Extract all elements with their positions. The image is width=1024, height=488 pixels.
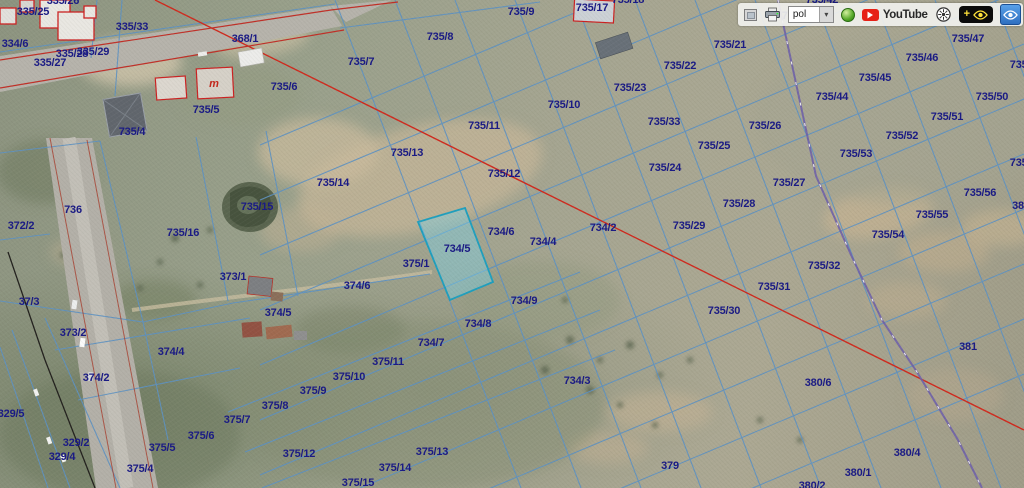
- parcel-label: 735/10: [548, 99, 580, 111]
- parcel-label: 735/56: [964, 187, 996, 199]
- parcel-label: 735/47: [952, 33, 984, 45]
- parcel-label: 375/10: [333, 371, 365, 383]
- parcel-label: 735/23: [614, 82, 646, 94]
- parcel-label: 734/2: [590, 222, 617, 234]
- visibility-button[interactable]: [1000, 4, 1021, 25]
- settings-icon: [935, 6, 952, 23]
- parcel-label: 735/24: [649, 162, 681, 174]
- image-icon: [744, 9, 757, 21]
- parcel-label: 735/32: [808, 260, 840, 272]
- parcel-label: 736: [64, 204, 82, 216]
- parcel-label: 380/1: [845, 467, 872, 479]
- parcel-label: 375/6: [188, 430, 215, 442]
- parcel-label: 375/14: [379, 462, 411, 474]
- language-select-value: pol: [793, 9, 806, 20]
- parcel-label: 735/27: [773, 177, 805, 189]
- parcel-label: 374/6: [344, 280, 371, 292]
- parcel-label: 374/2: [83, 372, 110, 384]
- parcel-label: 735/45: [859, 72, 891, 84]
- status-button[interactable]: [841, 8, 855, 22]
- parcel-label: 375/11: [372, 356, 404, 368]
- parcel-label: 380/6: [805, 377, 832, 389]
- parcel-label: 735/30: [708, 305, 740, 317]
- parcel-label: 735/12: [488, 168, 520, 180]
- parcel-label: 375/12: [283, 448, 315, 460]
- parcel-label: 735/54: [872, 229, 904, 241]
- green-circle-icon: [841, 8, 855, 22]
- print-button[interactable]: [764, 7, 781, 22]
- parcel-label: 374/5: [265, 307, 292, 319]
- parcel-label: 735/7: [348, 56, 375, 68]
- parcel-label: 735/53: [840, 148, 872, 160]
- parcel-label: 735/21: [714, 39, 746, 51]
- parcel-labels-layer: 335/26335/25335/33334/6335/29335/28335/2…: [0, 0, 1024, 488]
- toolbar: pol ▾ YouTube +: [738, 3, 1023, 26]
- parcel-label: 735/44: [816, 91, 848, 103]
- map-annotation: m: [209, 78, 219, 90]
- parcel-label: 735/6: [271, 81, 298, 93]
- youtube-play-icon: [862, 9, 879, 21]
- parcel-label: 373/2: [60, 327, 87, 339]
- parcel-label: 375/4: [127, 463, 154, 475]
- parcel-label: 373/1: [220, 271, 247, 283]
- parcel-label: 734/7: [418, 337, 445, 349]
- add-visibility-button[interactable]: +: [959, 6, 993, 23]
- parcel-label: 735/57: [1010, 157, 1024, 169]
- parcel-label: 734/9: [511, 295, 538, 307]
- parcel-label: 735/9: [508, 6, 535, 18]
- parcel-label: 735/48: [1010, 59, 1024, 71]
- parcel-label: 335/25: [17, 6, 49, 18]
- chevron-down-icon: ▾: [819, 7, 833, 22]
- youtube-label: YouTube: [883, 9, 928, 21]
- parcel-label: 735/50: [976, 91, 1008, 103]
- parcel-label: 381: [959, 341, 977, 353]
- parcel-label: 735/11: [468, 120, 500, 132]
- parcel-label: 735/13: [391, 147, 423, 159]
- parcel-label: 735/33: [648, 116, 680, 128]
- parcel-label: 735/14: [317, 177, 349, 189]
- parcel-label: 735/16: [167, 227, 199, 239]
- parcel-label: 329/5: [0, 408, 24, 420]
- parcel-label: 335/26: [47, 0, 79, 7]
- screenshot-tool-button[interactable]: [744, 9, 757, 21]
- parcel-label: 375/9: [300, 385, 327, 397]
- parcel-label: 329/4: [49, 451, 76, 463]
- parcel-label: 735/51: [931, 111, 963, 123]
- parcel-label: 375/8: [262, 400, 289, 412]
- parcel-label: 379: [661, 460, 679, 472]
- parcel-label: 734/5: [444, 243, 471, 255]
- parcel-label: 735/52: [886, 130, 918, 142]
- parcel-label: 735/8: [427, 31, 454, 43]
- parcel-label: 368/1: [232, 33, 259, 45]
- language-select[interactable]: pol ▾: [788, 6, 834, 23]
- printer-icon: [764, 7, 781, 22]
- parcel-label: 735/5: [193, 104, 220, 116]
- parcel-label: 735/46: [906, 52, 938, 64]
- parcel-label: 375/7: [224, 414, 251, 426]
- settings-button[interactable]: [935, 6, 952, 23]
- parcel-label: 375/13: [416, 446, 448, 458]
- parcel-label: 735/55: [916, 209, 948, 221]
- parcel-label: 335/33: [116, 21, 148, 33]
- parcel-label: 735/17: [576, 2, 608, 14]
- parcel-label: 735/28: [723, 198, 755, 210]
- parcel-label: 380/2: [799, 480, 826, 488]
- parcel-label: 380/4: [894, 447, 921, 459]
- parcel-label: 38: [1012, 200, 1024, 212]
- map-viewport[interactable]: 335/26335/25335/33334/6335/29335/28335/2…: [0, 0, 1024, 488]
- parcel-label: 735/15: [241, 201, 273, 213]
- parcel-label: 334/6: [2, 38, 29, 50]
- eye-icon: [973, 10, 988, 20]
- parcel-label: 735/18: [612, 0, 644, 6]
- parcel-label: 735/25: [698, 140, 730, 152]
- parcel-label: 735/22: [664, 60, 696, 72]
- youtube-button[interactable]: YouTube: [862, 9, 928, 21]
- parcel-label: 374/4: [158, 346, 185, 358]
- parcel-label: 734/6: [488, 226, 515, 238]
- parcel-label: 735/26: [749, 120, 781, 132]
- parcel-label: 735/29: [673, 220, 705, 232]
- parcel-label: 735/31: [758, 281, 790, 293]
- plus-icon: +: [964, 9, 970, 20]
- parcel-label: 335/27: [34, 57, 66, 69]
- parcel-label: 329/2: [63, 437, 90, 449]
- eye-icon: [1003, 10, 1018, 20]
- parcel-label: 735/4: [119, 126, 146, 138]
- parcel-label: 375/1: [403, 258, 430, 270]
- parcel-label: 375/15: [342, 477, 374, 488]
- parcel-label: 734/8: [465, 318, 492, 330]
- parcel-label: 37/3: [19, 296, 40, 308]
- parcel-label: 734/3: [564, 375, 591, 387]
- parcel-label: 375/5: [149, 442, 176, 454]
- parcel-label: 734/4: [530, 236, 557, 248]
- parcel-label: 372/2: [8, 220, 35, 232]
